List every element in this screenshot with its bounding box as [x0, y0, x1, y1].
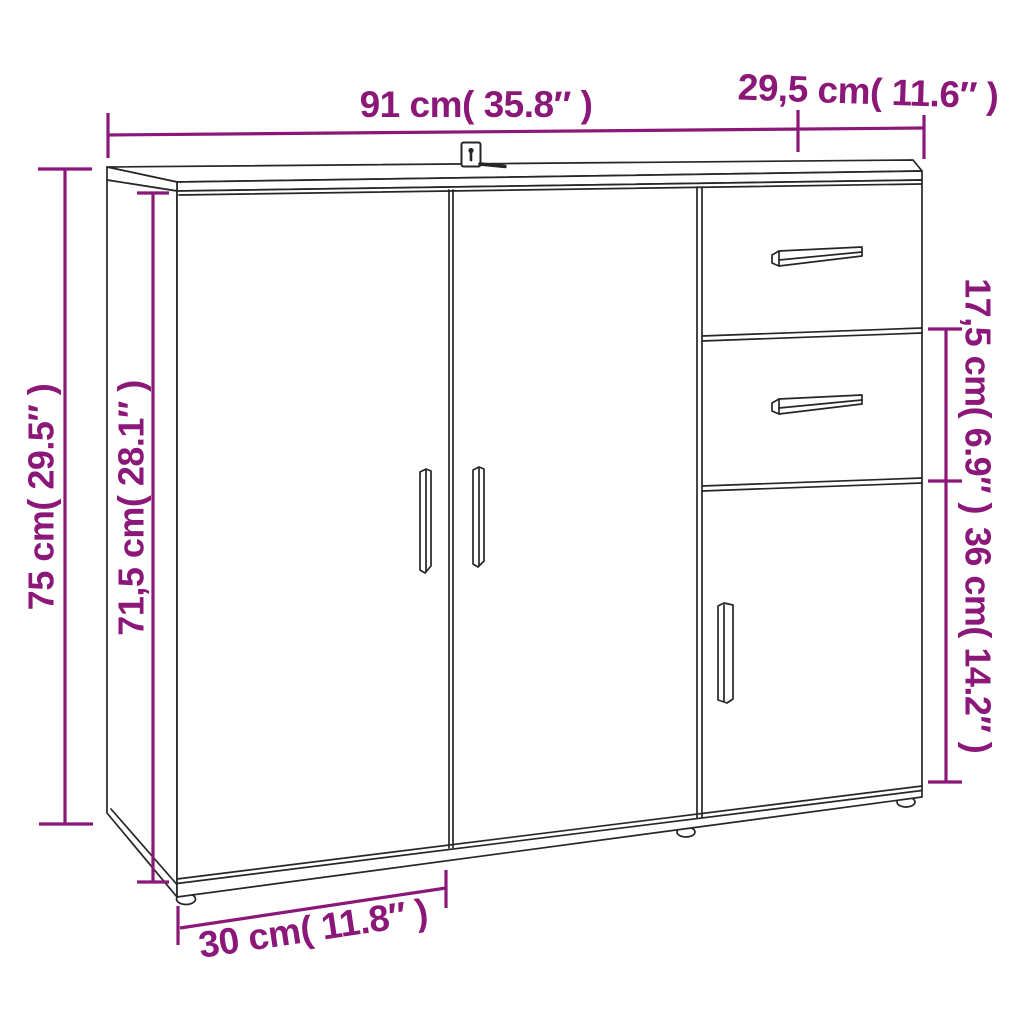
dim-height-total-label: 75 cm( 29.5″ ): [21, 384, 62, 610]
dim-drawer-section-label: 17,5 cm( 6.9″ ): [958, 278, 999, 514]
dim-width-label: 91 cm( 35.8″ ): [360, 84, 593, 125]
cabinet-drawing: [107, 143, 922, 905]
cabinet-front: [177, 180, 922, 897]
lower-door-handle: [718, 603, 733, 703]
right-door-handle: [473, 467, 484, 567]
dim-door-section-label: 36 cm( 14.2″ ): [958, 527, 999, 753]
dim-depth-top-label: 29,5 cm( 11.6″ ): [737, 66, 999, 116]
sideboard-dimension-diagram: 91 cm( 35.8″ ) 29,5 cm( 11.6″ ) 75 cm( 2…: [0, 0, 1024, 1024]
dim-right-sections-line: [928, 329, 962, 782]
dim-depth-bottom-label: 30 cm( 11.8″ ): [196, 891, 430, 966]
left-door-handle: [420, 469, 431, 573]
product-dimension-image: 91 cm( 35.8″ ) 29,5 cm( 11.6″ ) 75 cm( 2…: [0, 0, 1024, 1024]
dim-height-inner-label: 71,5 cm( 28.1″ ): [111, 380, 152, 635]
